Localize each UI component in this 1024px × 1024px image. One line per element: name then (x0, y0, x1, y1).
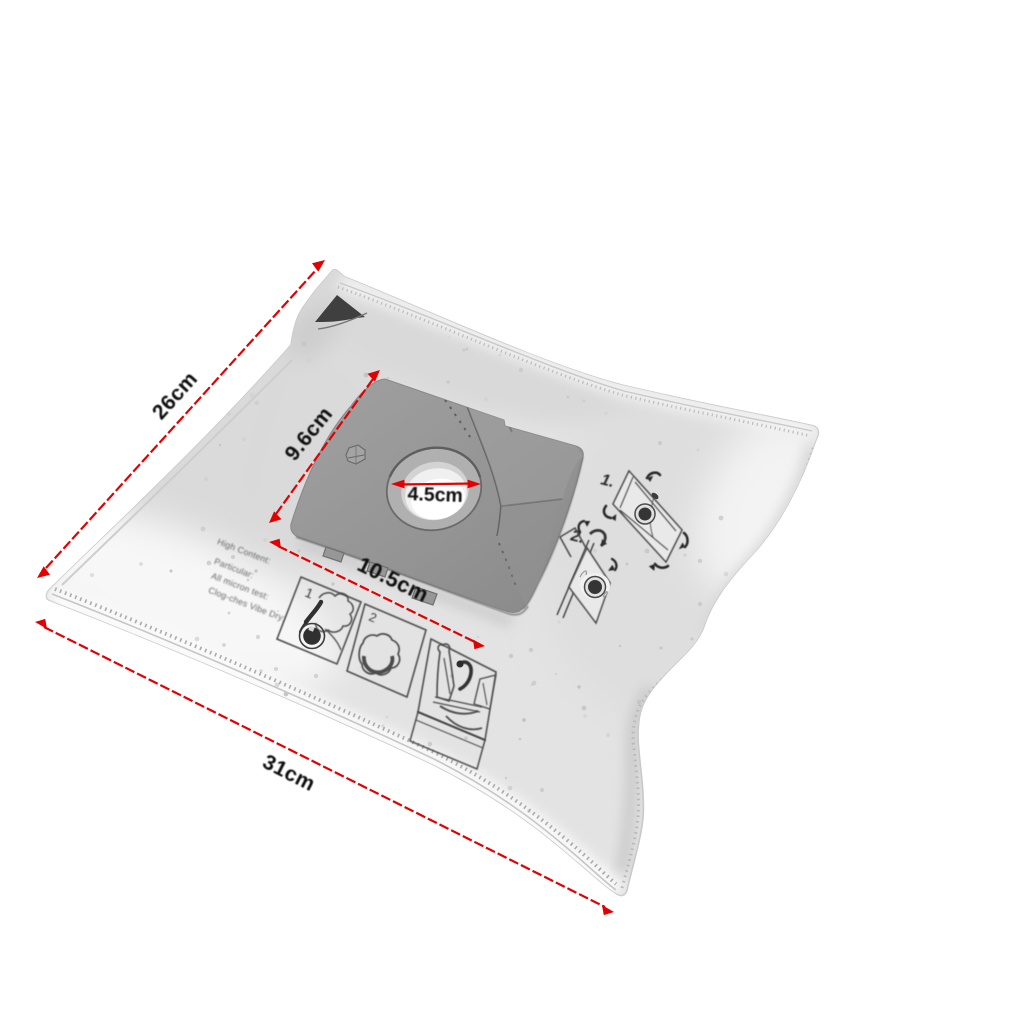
svg-text:4.5cm: 4.5cm (407, 483, 463, 507)
